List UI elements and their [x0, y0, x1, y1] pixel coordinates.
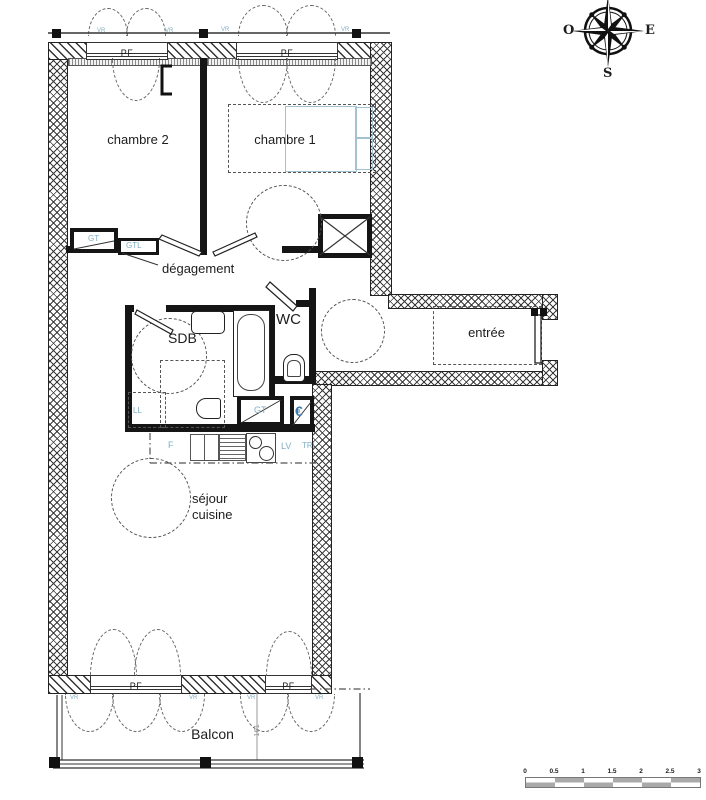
scale-tick: 2.5: [665, 768, 674, 775]
window-swing-arc: [286, 5, 336, 36]
scale-segment: [555, 778, 584, 787]
room-label-chambre2: chambre 2: [103, 132, 173, 147]
scale-bar-strip: [525, 777, 701, 788]
window-swing-arc: [112, 58, 160, 101]
window-swing-arc: [238, 5, 288, 36]
clearance-circle-chambre1: [246, 185, 322, 261]
clearance-circle-sejour: [111, 458, 191, 538]
room-label-sejour-line2: cuisine: [192, 507, 232, 523]
window-swing-arc: [238, 58, 288, 103]
window-swing-arc: [112, 694, 161, 732]
vr-label: VR: [341, 27, 349, 33]
dimension-balcony: 161: [252, 724, 261, 737]
hob-burner: [259, 446, 274, 461]
bed-pillow: [355, 138, 373, 170]
exterior-wall-bottom-segment: [48, 675, 92, 694]
scale-tick: 2: [639, 768, 643, 775]
window-swing-arc: [286, 58, 336, 103]
window-swing-arc: [65, 694, 114, 732]
washbasin: [196, 398, 221, 419]
hob-burner: [249, 436, 262, 449]
entree-wall-right: [542, 294, 558, 320]
window-swing-arc: [287, 694, 335, 732]
kitchen-drainer: [219, 434, 246, 461]
window-pf-sejour-1: PF: [90, 675, 182, 694]
scale-tick: 3: [697, 768, 701, 775]
equipment-label-ll: LL: [133, 406, 142, 415]
kitchen-cabinet-door: [190, 434, 205, 461]
room-label-sdb: SDB: [168, 330, 197, 346]
room-label-entree: entrée: [433, 325, 540, 340]
window-swing-arc: [240, 694, 289, 732]
entree-wall-right: [542, 360, 558, 386]
window-swing-arc: [90, 629, 137, 676]
equipment-label-gt-hall: GT: [88, 234, 99, 243]
compass-east-label: E: [645, 23, 655, 38]
room-label-balcon: Balcon: [180, 726, 245, 742]
room-label-degagement: dégagement: [162, 261, 234, 276]
partition-chambre1-chambre2: [200, 58, 207, 255]
scale-bar: 0 0.5 1 1.5 2 2.5 3: [523, 768, 705, 794]
window-label: PF: [281, 48, 294, 58]
technical-shaft: [318, 214, 372, 258]
equipment-label-gt-kitchen: GT: [254, 405, 267, 415]
scale-tick: 1: [581, 768, 585, 775]
equipment-label-dishwasher: LV: [281, 441, 291, 451]
compass-south-label: S: [603, 66, 612, 81]
window-label: PF: [121, 48, 134, 58]
bathtub-inner: [237, 314, 265, 391]
equipment-label-gtl: GTL: [126, 241, 142, 250]
room-label-chambre1: chambre 1: [250, 132, 320, 147]
exterior-wall-bottom-segment: [310, 675, 332, 694]
scale-tick: 0: [523, 768, 527, 775]
floor-plan: PF PF PF PF VR VR VR VR VR VR VR VR: [0, 0, 706, 800]
scale-tick: 1.5: [607, 768, 616, 775]
window-swing-arc: [88, 8, 128, 36]
window-swing-arc: [134, 629, 181, 676]
window-label: PF: [130, 681, 143, 691]
equipment-label-fridge: F: [168, 440, 174, 450]
compass-rose: O E S: [565, 0, 665, 90]
exterior-wall-bottom-segment: [180, 675, 267, 694]
room-label-sejour-line1: séjour: [192, 491, 232, 507]
equipment-label-euro: €: [295, 403, 303, 419]
bed-pillow: [355, 107, 373, 138]
window-label: PF: [282, 681, 295, 691]
scale-segment: [613, 778, 642, 787]
compass-star: [565, 0, 665, 90]
compass-west-label: O: [563, 23, 574, 38]
room-label-sejour: séjour cuisine: [192, 491, 232, 524]
wc-wall-top: [296, 300, 316, 307]
vr-label: VR: [165, 28, 173, 34]
scale-segment: [671, 778, 700, 787]
exterior-wall-right-lower: [312, 384, 332, 694]
toilet-bowl: [287, 360, 301, 377]
window-pf-sejour-2: PF: [265, 675, 312, 694]
exterior-wall-left: [48, 42, 68, 694]
equipment-label-tri: TRI: [302, 441, 315, 450]
entree-wall-bottom: [312, 371, 558, 386]
vr-label: VR: [221, 27, 229, 33]
scale-segment: [642, 778, 671, 787]
scale-segment: [584, 778, 613, 787]
kitchen-cabinet-door: [204, 434, 219, 461]
clearance-circle-entree: [321, 299, 385, 363]
room-label-wc: WC: [276, 311, 301, 328]
scale-tick: 0.5: [549, 768, 558, 775]
window-swing-arc: [266, 631, 312, 676]
window-swing-arc: [126, 8, 166, 36]
scale-segment: [526, 778, 555, 787]
